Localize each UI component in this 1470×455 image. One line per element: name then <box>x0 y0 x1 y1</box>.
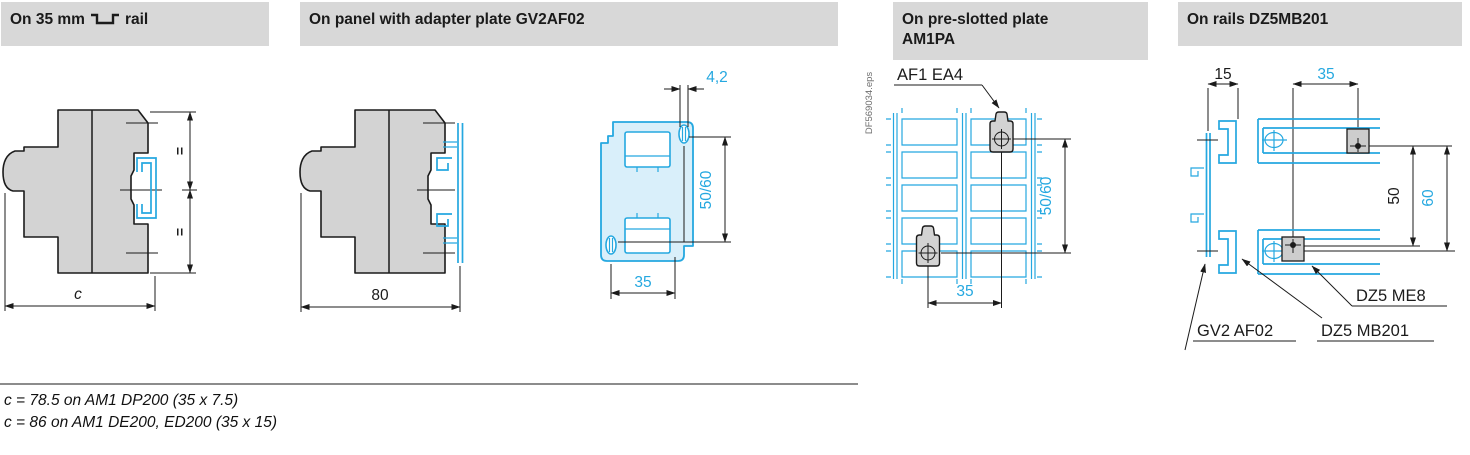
spacing-dimension-60: 60 <box>1420 146 1447 251</box>
technical-drawings: = = c 80 <box>0 0 1470 455</box>
dim-label-c: c <box>74 286 82 303</box>
footnotes: c = 78.5 on AM1 DP200 (35 x 7.5) c = 86 … <box>4 390 277 434</box>
dim-label-50-60: 50/60 <box>1038 176 1055 215</box>
din-rail-section <box>137 158 156 218</box>
clip-callout: AF1 EA4 <box>894 66 999 108</box>
diagram-adapter-plate-front: 4,2 50/60 35 <box>601 69 731 299</box>
contactor-side-profile <box>3 110 148 273</box>
dim-label-50-60: 50/60 <box>698 170 715 209</box>
vertical-dimension-50-60: 50/60 <box>928 139 1071 308</box>
dim-label-35: 35 <box>634 274 651 291</box>
horizontal-dimension-35: 35 <box>928 283 1002 303</box>
horizontal-dimension-35: 35 <box>611 257 675 299</box>
rail-front-view-bottom <box>1258 230 1380 274</box>
diagram-adapter-plate-side: 80 <box>300 110 463 312</box>
figure-file-reference: DF569034.eps <box>864 72 875 135</box>
footnote-divider <box>0 383 858 385</box>
equal-spacing-dimension: = = <box>150 112 197 273</box>
dim-label-35: 35 <box>956 283 973 300</box>
rail-front-view-top <box>1258 119 1380 163</box>
diagram-preslotted-plate: DF569034.eps 50/60 <box>864 66 1071 308</box>
footnote-line-2: c = 86 on AM1 DE200, ED200 (35 x 15) <box>4 412 277 434</box>
diagram-din-rail-side: = = c <box>3 110 197 311</box>
footnote-line-1: c = 78.5 on AM1 DP200 (35 x 7.5) <box>4 390 277 412</box>
equal-mark-top: = <box>172 147 188 155</box>
dim-label-4-2: 4,2 <box>706 69 728 86</box>
rail-part-label: DZ5 MB201 <box>1321 322 1409 340</box>
fixing-clip-top <box>990 112 1013 152</box>
fixing-clip-bottom <box>917 226 940 266</box>
clip-part-label: AF1 EA4 <box>897 66 963 84</box>
dim-label-35: 35 <box>1317 66 1334 83</box>
slotted-grid <box>886 108 1042 284</box>
dim-label-15: 15 <box>1214 66 1231 83</box>
contactor-side-profile <box>300 110 445 273</box>
plate-part-label: GV2 AF02 <box>1197 322 1273 340</box>
catalog-mounting-dimensions-page: On 35 mmrail On panel with adapter plate… <box>0 0 1470 455</box>
dim-label-50: 50 <box>1386 187 1403 205</box>
rail-side-view <box>1191 121 1236 273</box>
equal-mark-bottom: = <box>172 228 188 236</box>
dim-label-60: 60 <box>1420 189 1437 207</box>
dim-label-80: 80 <box>371 287 389 304</box>
slot-width-dimension: 4,2 <box>664 69 728 127</box>
nut-part-label: DZ5 ME8 <box>1356 287 1426 305</box>
diagram-rails: 15 35 <box>1185 66 1455 350</box>
